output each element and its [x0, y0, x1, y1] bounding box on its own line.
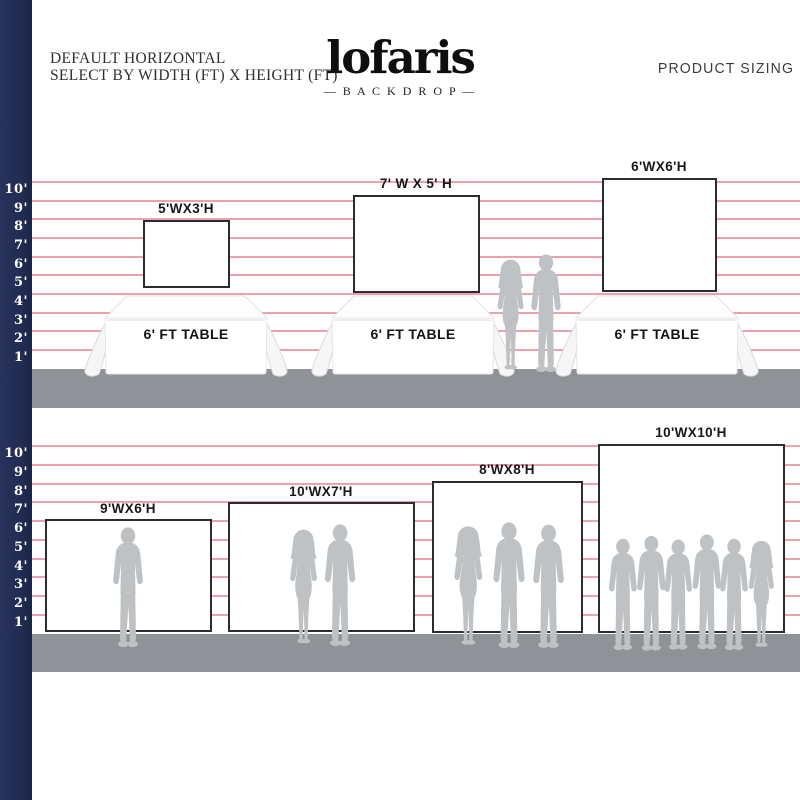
height-ruler-bar	[0, 0, 32, 800]
selection-note-line2: SELECT BY WIDTH (FT) X HEIGHT (FT)	[50, 67, 338, 84]
ruler-label: 9'	[0, 202, 28, 216]
ruler-label: 2'	[0, 597, 28, 611]
brand-logo: lofaris — B A C K D R O P —	[300, 34, 500, 99]
backdrop-size-label: 7' W X 5' H	[331, 176, 501, 191]
ruler-label: 5'	[0, 541, 28, 555]
backdrop-size-label: 6'WX6'H	[574, 159, 744, 174]
ruler-label: 7'	[0, 239, 28, 253]
backdrop-5x3	[143, 220, 230, 288]
ruler-label: 1'	[0, 616, 28, 630]
ruler-label: 5'	[0, 276, 28, 290]
ruler-label: 8'	[0, 485, 28, 499]
ruler-label: 6'	[0, 522, 28, 536]
people-silhouette-couple	[489, 254, 567, 374]
backdrop-size-label: 5'WX3'H	[101, 201, 271, 216]
product-sizing-infographic: DEFAULT HORIZONTAL SELECT BY WIDTH (FT) …	[0, 0, 800, 800]
ruler-label: 10'	[0, 183, 28, 197]
ruler-label: 7'	[0, 503, 28, 517]
table-label: 6' FT TABLE	[542, 326, 772, 342]
ruler-label: 3'	[0, 578, 28, 592]
backdrop-size-label: 10'WX7'H	[236, 484, 406, 499]
ruler-label: 9'	[0, 466, 28, 480]
page-title: PRODUCT SIZING	[656, 60, 795, 77]
people-silhouette-trio	[445, 522, 573, 650]
backdrop-size-label: 10'WX10'H	[606, 425, 776, 440]
ruler-label: 4'	[0, 295, 28, 309]
ruler-label: 4'	[0, 560, 28, 574]
brand-name: lofaris	[300, 34, 500, 82]
backdrop-size-label: 9'WX6'H	[43, 501, 213, 516]
backdrop-size-label: 8'WX8'H	[422, 462, 592, 477]
selection-note-line1: DEFAULT HORIZONTAL	[50, 50, 338, 67]
ruler-label: 2'	[0, 332, 28, 346]
ruler-label: 6'	[0, 258, 28, 272]
ruler-label: 8'	[0, 220, 28, 234]
people-silhouette-group	[600, 534, 786, 651]
brand-tagline: — B A C K D R O P —	[300, 84, 500, 99]
ruler-label: 1'	[0, 351, 28, 365]
backdrop-6x6	[602, 178, 717, 292]
ruler-label: 3'	[0, 314, 28, 328]
ruler-label: 10'	[0, 447, 28, 461]
people-silhouette-single	[105, 527, 151, 649]
table-label: 6' FT TABLE	[71, 326, 301, 342]
people-silhouette-couple	[281, 524, 362, 648]
selection-note: DEFAULT HORIZONTAL SELECT BY WIDTH (FT) …	[50, 50, 338, 84]
backdrop-7x5	[353, 195, 480, 293]
